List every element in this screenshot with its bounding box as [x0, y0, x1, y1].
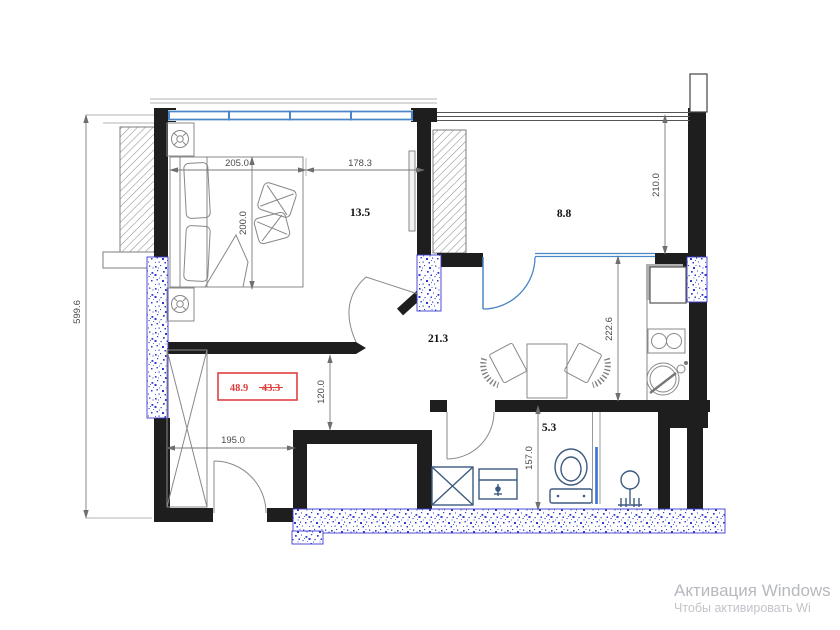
mirror-symbol: [409, 151, 415, 231]
bathroom-door: [447, 412, 494, 459]
dim-bathroom-depth: 157.0: [524, 406, 538, 510]
dining-table-symbol: [527, 344, 567, 398]
hatched-shaft-room2: [433, 130, 466, 253]
total-area-previous: 43.3: [262, 383, 280, 394]
area-label-room2: 8.8: [557, 208, 572, 220]
water-heater-symbol: [618, 471, 642, 507]
chair-left-symbol: [478, 343, 527, 389]
dim-room2-depth-label: 210.0: [651, 173, 662, 197]
dim-bed-width: 205.0: [170, 158, 306, 176]
dim-living-depth: 222.6: [604, 256, 618, 401]
bedroom-window: [168, 110, 413, 121]
dim-living-depth-label: 222.6: [604, 317, 615, 341]
entry-door: [214, 461, 266, 513]
dim-hall-width-label: 195.0: [221, 435, 245, 446]
area-label-bedroom: 13.5: [350, 207, 370, 219]
kitchen-sink-symbol: [647, 361, 688, 395]
dim-bed-depth-label: 200.0: [238, 211, 249, 235]
dim-hall-width: 195.0: [167, 435, 295, 448]
hatched-shaft-left: [120, 127, 158, 253]
dim-bathroom-depth-label: 157.0: [524, 446, 535, 470]
shower-tray-symbol: [432, 467, 473, 505]
living-glass-partition: [535, 254, 655, 257]
room2-glazing-band: [437, 113, 690, 121]
dim-left-wall-label: 599.6: [72, 300, 83, 324]
dim-bedroom-right: 178.3: [306, 158, 424, 170]
dim-bed-width-label: 205.0: [225, 158, 249, 169]
area-label-bathroom: 5.3: [542, 422, 557, 434]
fridge-symbol: [646, 264, 686, 303]
floor-plan-drawing: 599.6 205.0 178.3 200.0 210.0 222.6 120.…: [0, 0, 840, 630]
dim-room2-depth: 210.0: [651, 115, 665, 254]
nightstand-lamp-top: [167, 123, 194, 156]
dim-hall-depth-label: 120.0: [316, 380, 327, 404]
total-area-box: 48.9 43.3: [218, 373, 297, 400]
dim-hall-depth: 120.0: [316, 355, 330, 430]
balcony-door: [483, 257, 535, 309]
dim-bedroom-right-label: 178.3: [348, 158, 372, 169]
dim-left-wall: 599.6: [72, 115, 86, 518]
vanity-sink-symbol: [479, 469, 517, 499]
bathroom-partition: [593, 412, 601, 504]
toilet-symbol: [550, 449, 592, 503]
area-label-living: 21.3: [428, 333, 448, 345]
wardrobe-symbol: [167, 350, 207, 507]
bed-symbol: [170, 157, 303, 287]
nightstand-lamp-bottom: [167, 288, 194, 321]
hob-symbol: [648, 329, 685, 353]
total-area-current: 48.9: [230, 383, 248, 394]
chair-right-symbol: [564, 343, 613, 389]
floor-plan-page: 599.6 205.0 178.3 200.0 210.0 222.6 120.…: [0, 0, 840, 630]
dim-bed-depth: 200.0: [238, 157, 252, 289]
